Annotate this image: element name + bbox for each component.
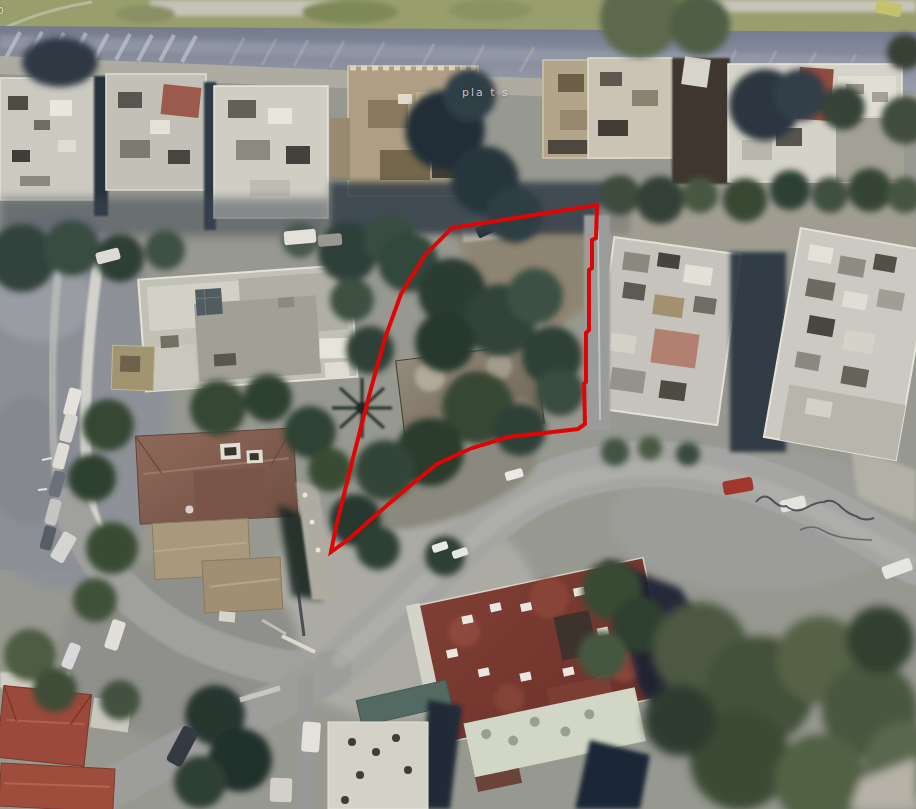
aerial-map-view: pla t s 0 bbox=[0, 0, 916, 809]
tone-overlay bbox=[0, 0, 916, 809]
aerial-scene bbox=[0, 0, 916, 809]
